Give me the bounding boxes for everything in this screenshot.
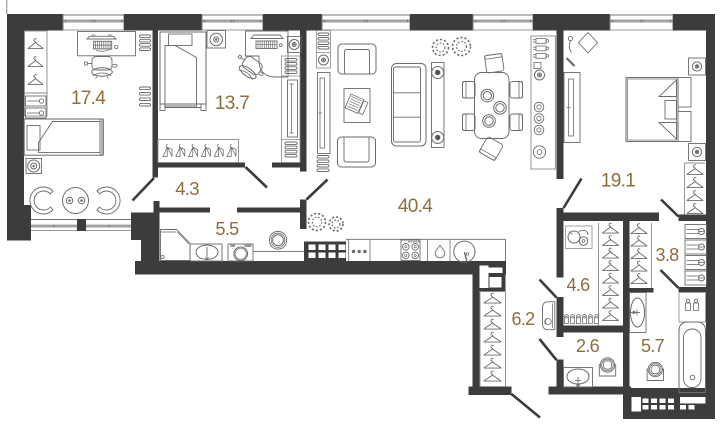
svg-text:5.7: 5.7 [641,336,665,356]
svg-text:4.6: 4.6 [567,275,591,295]
svg-text:13.7: 13.7 [215,93,249,114]
svg-text:6.2: 6.2 [512,309,536,329]
svg-text:19.1: 19.1 [601,171,635,192]
svg-text:2.6: 2.6 [576,336,600,356]
svg-text:3.8: 3.8 [656,245,680,265]
svg-text:4.3: 4.3 [175,178,199,199]
svg-text:40.4: 40.4 [398,196,433,217]
svg-text:5.5: 5.5 [216,219,240,239]
svg-text:17.4: 17.4 [71,88,106,109]
